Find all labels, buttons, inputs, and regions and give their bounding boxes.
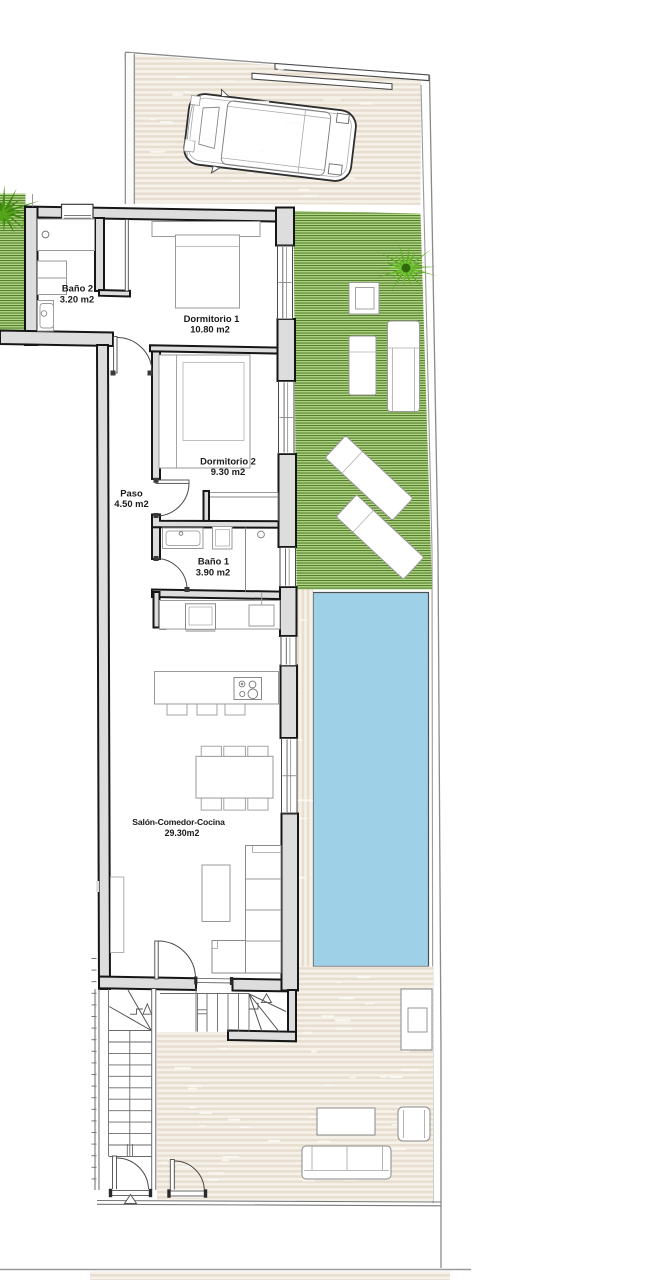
svg-text:3.20 m2: 3.20 m2 xyxy=(60,294,94,305)
svg-text:Baño 2: Baño 2 xyxy=(62,283,93,294)
svg-text:Baño 1: Baño 1 xyxy=(198,556,229,567)
svg-text:Dormitorio 1: Dormitorio 1 xyxy=(184,313,240,324)
svg-text:Salón-Comedor-Cocina: Salón-Comedor-Cocina xyxy=(132,817,225,827)
svg-text:4.50 m2: 4.50 m2 xyxy=(114,498,148,509)
svg-text:29.30m2: 29.30m2 xyxy=(165,828,200,838)
svg-text:3.90 m2: 3.90 m2 xyxy=(196,567,230,578)
svg-text:10.80 m2: 10.80 m2 xyxy=(190,324,230,335)
svg-text:9.30 m2: 9.30 m2 xyxy=(211,466,245,477)
svg-text:Dormitorio 2: Dormitorio 2 xyxy=(200,456,256,467)
svg-text:Paso: Paso xyxy=(120,488,143,499)
